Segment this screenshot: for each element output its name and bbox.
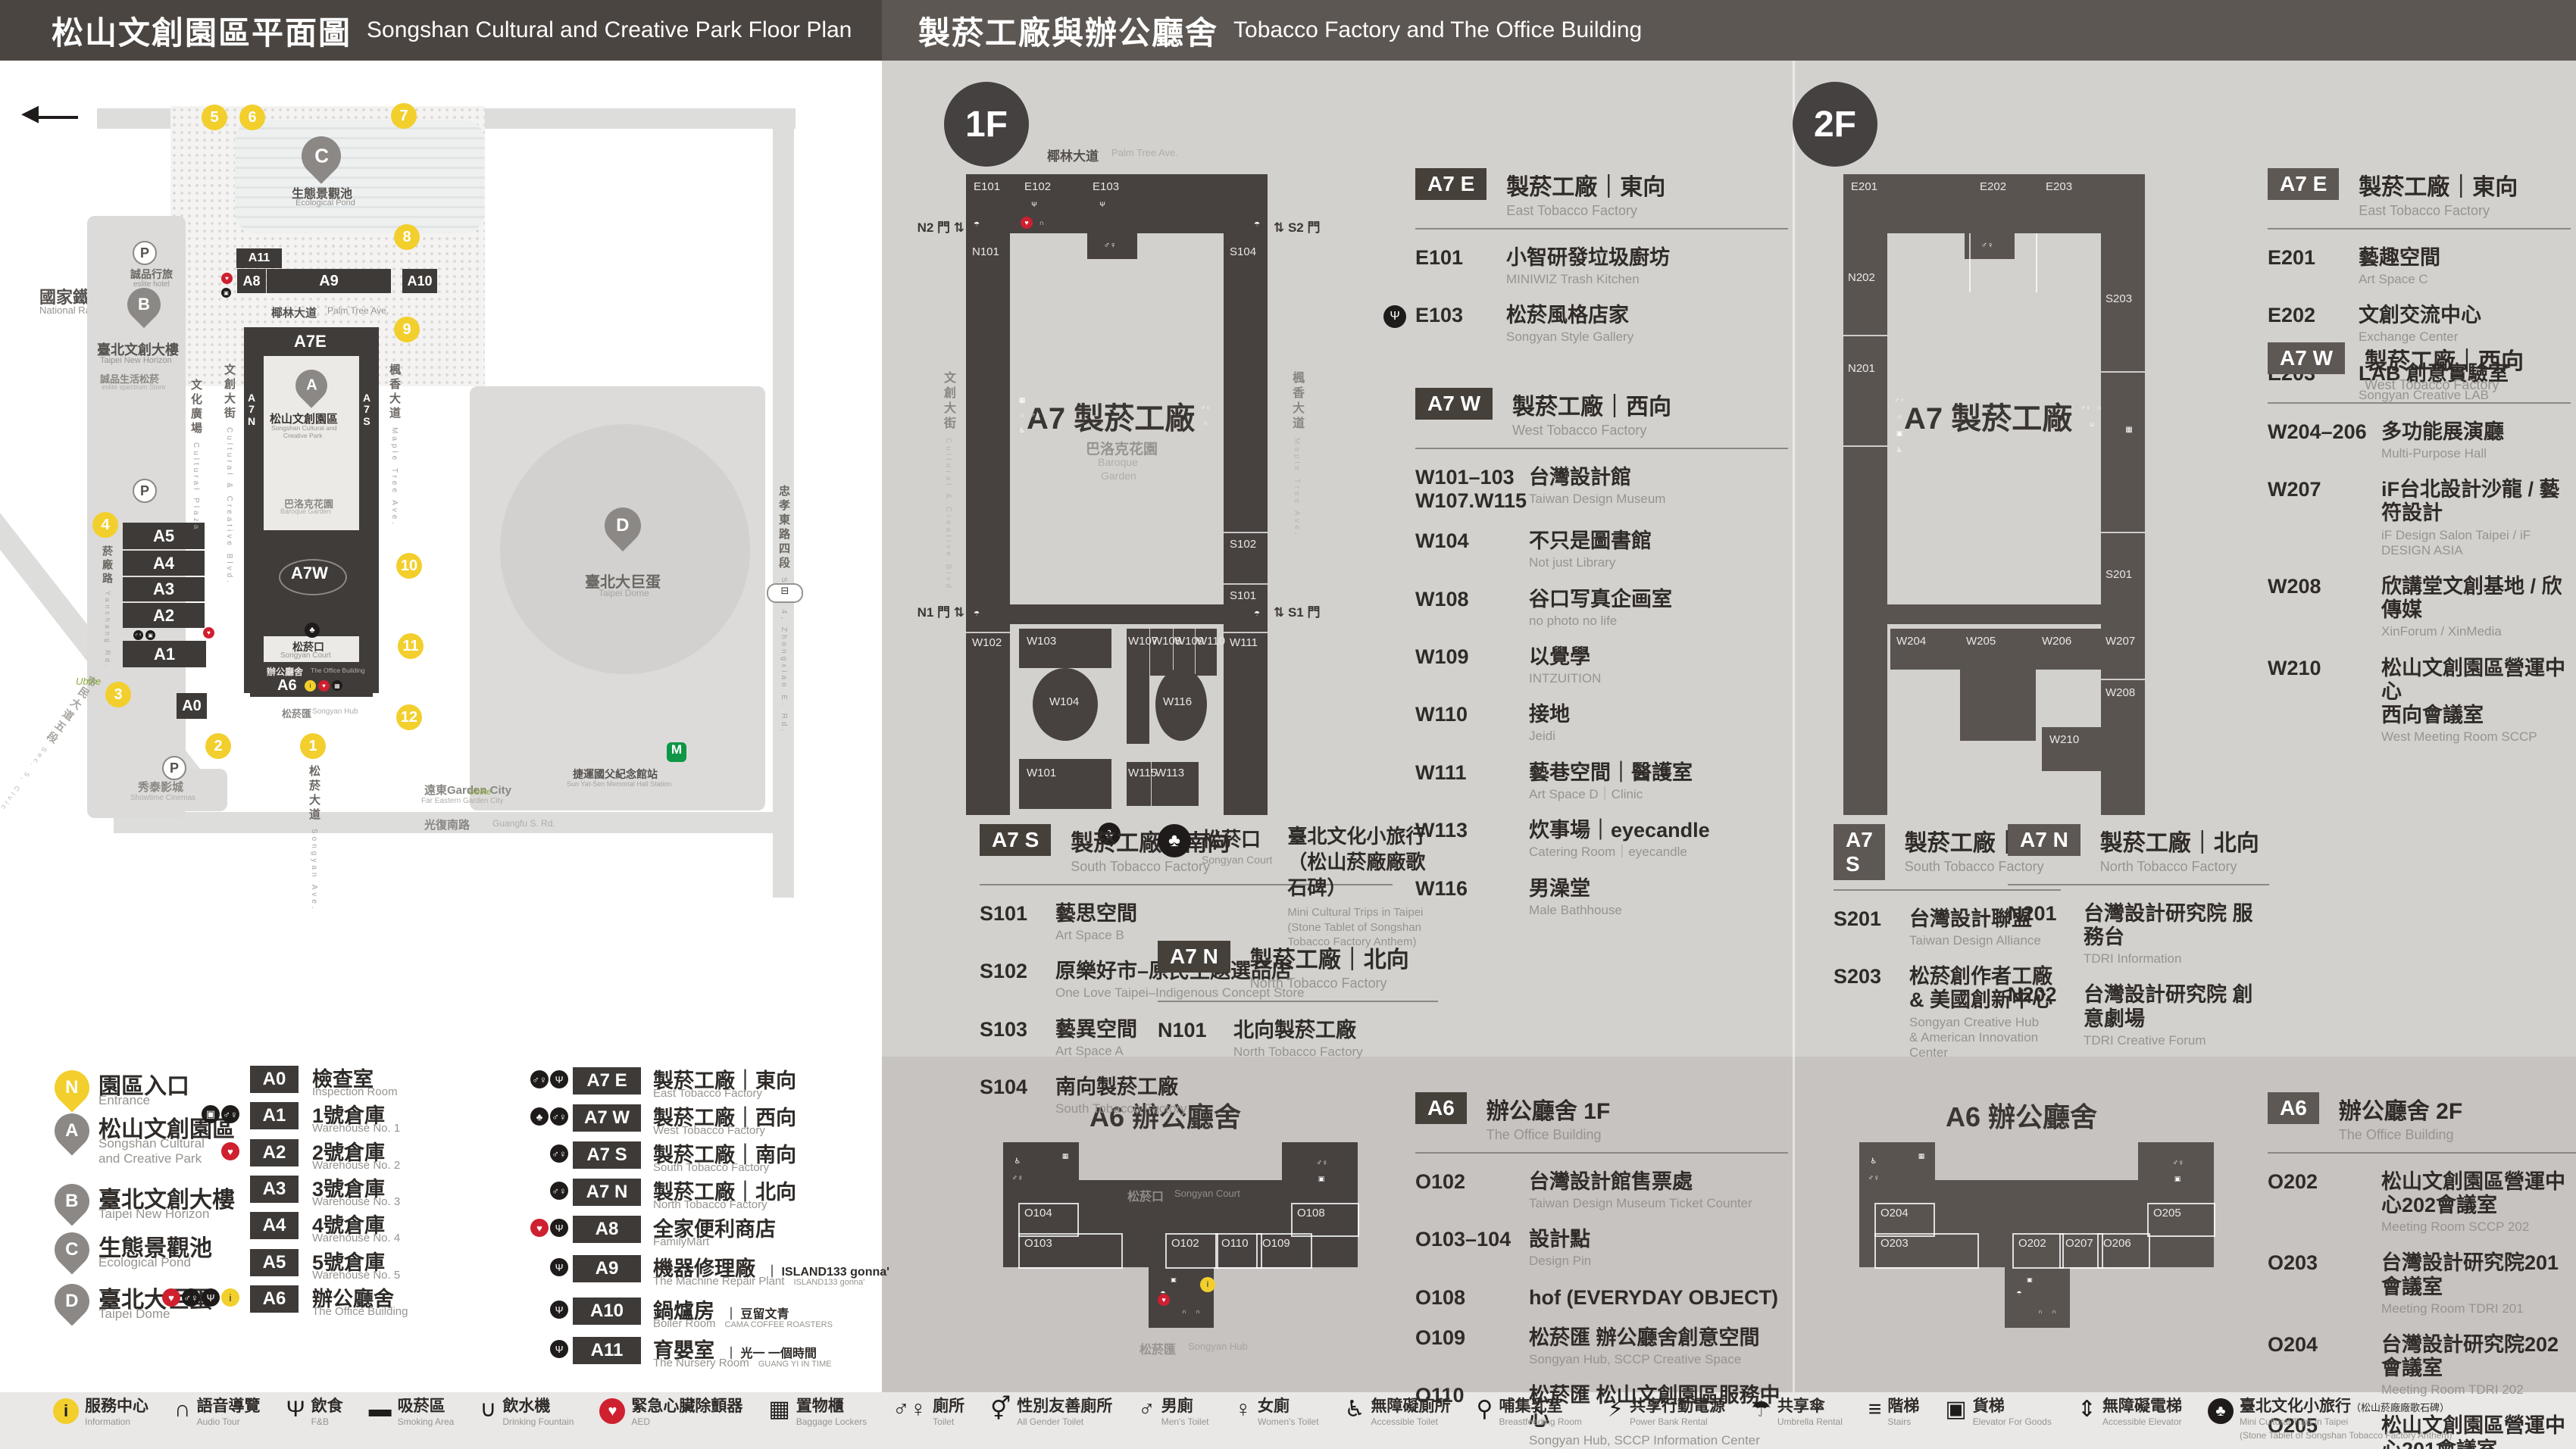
toilet-icon: ♂♀: [550, 1107, 568, 1126]
eslite-hotel-zh: 誠品行旅: [130, 267, 173, 282]
room-O104: O104: [1018, 1203, 1079, 1237]
legend-chip-A2: A2: [250, 1139, 299, 1166]
goods-icon: ▣: [1168, 1274, 1179, 1285]
locker-icon: ▦: [768, 1398, 789, 1421]
room-O102: O102: [1165, 1233, 1218, 1269]
civic-label: 市民大道五段Sec. 5, Civic Blvd.: [0, 673, 101, 845]
toilet-icon: ♂♀: [133, 630, 143, 640]
room-label-N101: N101: [972, 245, 999, 258]
audio-icon: ∩: [1893, 411, 1905, 423]
room-divider: [2101, 679, 2145, 680]
taipei-dome: [500, 424, 750, 674]
toilet-icon: ♂♀: [1199, 401, 1211, 414]
legend-chip-A8: A8: [573, 1216, 641, 1243]
drink-icon: ∪: [480, 1398, 496, 1421]
food-icon: Ψ: [1028, 198, 1040, 211]
legend-bldg-en: East Tobacco Factory: [653, 1087, 762, 1100]
map-block-A8: A8: [237, 269, 266, 293]
pond-en: Ecological Pond: [295, 198, 355, 208]
entrance-5: 5: [202, 105, 227, 130]
gate-s2: ⇅ S2 門: [1274, 217, 1320, 236]
legend-chip-A9: A9: [573, 1255, 641, 1282]
room-label-S102: S102: [1230, 538, 1256, 551]
legend-chip-A10: A10: [573, 1298, 641, 1325]
facility-info: i服務中心Information: [53, 1398, 148, 1429]
room-label-W111: W111: [1230, 636, 1258, 649]
new-horizon-en: Taipei New Horizon: [100, 356, 172, 365]
goods-icon: ▣: [1893, 427, 1905, 439]
map-office-en: The Office Building: [311, 667, 365, 674]
toilet-icon: ♂♀: [1315, 1156, 1329, 1170]
map-park-en2: Creative Park: [283, 432, 323, 439]
legend-bldg-en: North Tobacco Factory: [653, 1198, 767, 1211]
facility-goods: ▣貨梯Elevator For Goods: [1945, 1398, 2051, 1429]
legend-pin-en: Songshan Cultural: [98, 1136, 205, 1151]
smoking-icon: ▬: [369, 1398, 392, 1421]
goods-icon: ▣: [221, 288, 231, 298]
audio-icon: ∩: [2035, 1306, 2046, 1316]
umbrella-icon: ☂: [1251, 607, 1263, 620]
umbrella-icon: ☂: [1751, 1398, 1771, 1421]
plan-garden-en2: Garden: [1101, 470, 1136, 482]
room-label-W204: W204: [1896, 635, 1926, 648]
entrance-6: 6: [239, 105, 265, 130]
room-label-E201: E201: [1851, 180, 1877, 193]
plan-center-label: A7 製菸工廠: [1027, 394, 1195, 438]
room-O206: O206: [2097, 1233, 2150, 1269]
food-icon: Ψ: [550, 1258, 568, 1276]
legend-chip-A7 S: A7 S: [573, 1141, 641, 1169]
legend-chip-A0: A0: [250, 1066, 299, 1093]
aed-icon: ♥: [162, 1288, 180, 1307]
a6-hub-en: Songyan Hub: [1188, 1341, 1248, 1352]
legend-chip-A7 W: A7 W: [573, 1104, 641, 1132]
audio-icon: ∩: [1036, 217, 1048, 229]
entrance-1: 1: [300, 733, 326, 759]
entrance-10: 10: [396, 553, 422, 579]
map-a7s-label: A 7 S: [363, 392, 370, 427]
room-label-W116: W116: [1163, 695, 1192, 708]
toilet-icon: ♂♀: [2080, 401, 2092, 414]
room-divider: [1224, 532, 1268, 533]
map-office-zh: 辦公廳舍: [267, 665, 303, 678]
toilet-icon: ♂♀: [1893, 394, 1905, 406]
drink-icon: ∪: [2086, 418, 2098, 430]
metro-icon: M: [667, 742, 686, 762]
goods-icon: ▣: [1945, 1398, 1966, 1421]
legend-chip-A7 E: A7 E: [573, 1067, 641, 1095]
room-label-E202: E202: [1980, 180, 2006, 193]
umbrella-icon: ☂: [2014, 1288, 2024, 1298]
audio-icon: ∩: [1016, 409, 1028, 421]
access-icon: ♿: [1016, 424, 1028, 436]
plan-center-label: A7 製菸工廠: [1904, 394, 2072, 438]
metro-zh: 捷運國父紀念館站: [573, 767, 658, 782]
eslite-spectrum-en: eslite spectrum Store: [102, 383, 166, 391]
room-divider: [1843, 445, 1887, 447]
entrance-3: 3: [105, 682, 131, 707]
gate-n1: N1 門 ⇅: [918, 601, 964, 620]
plan-corridor: [966, 604, 1268, 624]
parking-icon: P: [133, 241, 157, 265]
info-icon: i: [221, 1288, 239, 1307]
room-label-E102: E102: [1024, 180, 1051, 193]
access-icon: ♿: [1011, 1154, 1024, 1168]
audio-icon: ∩: [1199, 417, 1211, 429]
parking-icon: P: [133, 479, 157, 503]
aed-icon: ♥: [1021, 217, 1033, 229]
street-palm-zh: 椰林大道: [1047, 145, 1099, 164]
elev-icon: ⇕: [2077, 1398, 2096, 1421]
locker-icon: ▦: [1059, 1150, 1071, 1162]
floor1-badge: 1F: [944, 82, 1029, 167]
room-O103: O103: [1018, 1233, 1123, 1269]
facility-umbrella: ☂共享傘Umbrella Rental: [1751, 1398, 1843, 1429]
legend-pin-en2: and Creative Park: [98, 1151, 202, 1166]
map-a7e-label: A7E: [294, 332, 327, 351]
yanchang-label: 菸廠路Yanchang Rd.: [100, 545, 115, 670]
room-O204: O204: [1874, 1203, 1935, 1237]
toilet-icon: ♂♀: [1867, 1171, 1880, 1185]
facility-audio: ∩語音導覽Audio Tour: [174, 1398, 261, 1429]
plan-col-left: [966, 233, 1010, 815]
room-divider: [1969, 233, 1971, 292]
map-block-A3: A3: [123, 577, 205, 601]
map-block-A9: A9: [267, 269, 391, 293]
toilet-icon: ♂♀: [893, 1398, 927, 1421]
room-label-W113: W113: [1155, 767, 1184, 779]
map-a7w-label: A7W: [291, 564, 328, 583]
ubike-label: Ubike: [76, 676, 101, 687]
facility-drink: ∪飲水機Drinking Fountain: [480, 1398, 574, 1429]
maple-label: 楓香大道Maple Tree Ave.: [386, 364, 402, 527]
allgender-icon: ⚥: [990, 1398, 1011, 1421]
legend-chip-A11: A11: [573, 1337, 641, 1364]
header-right: 製菸工廠與辦公廳舍 Tobacco Factory and The Office…: [882, 0, 2576, 61]
legend-pin-D: D: [47, 1276, 96, 1326]
access-icon: ♿: [1345, 1398, 1365, 1421]
locker-icon: ▦: [332, 680, 342, 691]
room-divider: [1224, 632, 1268, 633]
eslite-hotel-en: eslite hotel: [133, 280, 170, 289]
legend-pin-A: A: [47, 1106, 96, 1155]
ubike-label: Ubike: [468, 786, 492, 797]
legend-pin-C: C: [47, 1225, 96, 1274]
page-title-right-zh: 製菸工廠與辦公廳舍: [918, 8, 1218, 54]
bus-stop-icon: ⊟: [767, 583, 803, 603]
room-label-S101: S101: [1230, 589, 1256, 602]
food-icon: Ψ: [286, 1398, 305, 1421]
street-maple: 楓香大道Maple Tree Ave.: [1287, 371, 1305, 538]
legend-bldg-en: Warehouse No. 1: [312, 1122, 400, 1135]
metro-en: Sun Yat-Sen Memorial Hall Station: [567, 780, 671, 788]
legend-bldg-en: The Office Building: [312, 1305, 408, 1318]
facility-access: ♿無障礙廁所Accessible Toilet: [1345, 1398, 1451, 1429]
legend-chip-A1: A1: [250, 1102, 299, 1129]
legend-bldg-en: Warehouse No. 2: [312, 1159, 400, 1172]
header-left: 松山文創園區平面圖 Songshan Cultural and Creative…: [0, 0, 882, 61]
entrance-2: 2: [205, 733, 231, 759]
power-icon: ⚡: [1608, 1398, 1624, 1421]
map-block-A1: A1: [123, 641, 206, 667]
room-divider: [1224, 583, 1268, 585]
a6-plan-title: A6 辦公廳舍: [1946, 1095, 2097, 1135]
audio-icon: ∩: [1193, 1306, 1203, 1316]
plan-col-right: [1224, 233, 1268, 815]
entrance-12: 12: [396, 704, 422, 730]
goods-icon: ▣: [202, 1105, 220, 1123]
food-icon: Ψ: [550, 1070, 568, 1088]
facility-women: ♀女廁Women's Toilet: [1235, 1398, 1319, 1429]
legend-bldg-en: Boiler RoomCAMA COFFEE ROASTERS: [653, 1317, 833, 1330]
food-icon: Ψ: [550, 1219, 568, 1237]
room-label-W210: W210: [2049, 733, 2079, 746]
a6-stem: [2005, 1267, 2070, 1328]
tree-icon: ♣: [2208, 1398, 2234, 1424]
info-icon: i: [305, 680, 316, 692]
guangfu-label-zh: 光復南路: [424, 817, 470, 832]
legend-pin-N: N: [47, 1063, 96, 1112]
room-label-W104: W104: [1049, 695, 1079, 708]
tree-icon: ♣: [1098, 823, 1121, 845]
a6-court-en: Songyan Court: [1174, 1188, 1240, 1199]
gate-s1: ⇅ S1 門: [1274, 601, 1320, 620]
map-baroque-en: Baroque Garden: [280, 507, 331, 515]
audio-icon: ∩: [174, 1398, 191, 1421]
audio-icon: ∩: [2093, 401, 2106, 414]
map-court-en: Songyan Court: [280, 651, 331, 660]
map-park-en1: Songshan Cultural and: [271, 424, 336, 432]
map-legend: N園區入口EntranceA松山文創園區Songshan Culturaland…: [0, 1057, 882, 1390]
food-icon: Ψ: [550, 1301, 568, 1319]
room-label-W206: W206: [2042, 635, 2071, 648]
a6-plan-title: A6 辦公廳舍: [1089, 1095, 1241, 1135]
ecological-pond: [235, 120, 485, 233]
facility-smoking: ▬吸菸區Smoking Area: [369, 1398, 455, 1429]
map-block-A0: A0: [177, 693, 207, 719]
legend-pin-en: Entrance: [98, 1093, 150, 1108]
plan-col-left: [1843, 233, 1887, 815]
room-divider: [1843, 335, 1887, 336]
showtime-en: Showtime Cinemas: [130, 794, 195, 802]
goods-icon: ▣: [1315, 1173, 1327, 1185]
entrance-9: 9: [394, 317, 420, 342]
locker-icon: ▦: [1915, 1150, 1927, 1162]
room-label-S201: S201: [2106, 568, 2132, 581]
room-O202: O202: [2012, 1233, 2064, 1269]
ccblvd-label: 文創大街Cultural & Creative Blvd.: [221, 364, 237, 586]
facility-elev: ⇕無障礙電梯Accessible Elevator: [2077, 1398, 2182, 1429]
facility-allgender: ⚥性別友善廁所All Gender Toilet: [990, 1398, 1112, 1429]
room-label-E101: E101: [974, 180, 1000, 193]
aed-icon: ♥: [318, 680, 330, 692]
aed-icon: ♥: [530, 1219, 549, 1237]
north-arrow-icon: ◀: [21, 100, 97, 120]
tree-icon: ♣: [305, 623, 320, 638]
room-label-W115: W115: [1128, 767, 1157, 779]
women-icon: ♀: [1235, 1398, 1252, 1421]
legend-pin-en: Taipei Dome: [98, 1307, 170, 1322]
room-label-W102: W102: [972, 636, 1002, 649]
toilet-icon: ♂♀: [182, 1288, 200, 1307]
toilet-icon: ♂♀: [550, 1145, 568, 1163]
room-label-S104: S104: [1230, 245, 1256, 258]
office-building-plan-2f: A6 辦公廳舍♿♂♀▦♂♀▣▣☂∩∩O204O203O202O207O206O2…: [1832, 1089, 2241, 1385]
room-label-W110: W110: [1196, 635, 1225, 648]
locker-icon: ▦: [2122, 423, 2136, 436]
office-building-plan-1f: A6 辦公廳舍♿♂♀▦♂♀▣▣☂∩∩松菸口Songyan Courti♥松菸匯S…: [976, 1089, 1385, 1385]
legend-bldg-en: The Nursery RoomGUANG YI IN TIME: [653, 1357, 831, 1369]
room-label-W101: W101: [1027, 767, 1056, 779]
food-icon: Ψ: [1096, 198, 1108, 211]
park-map: ◀國家鐵道博物館National Railway MuseumP誠品行旅esli…: [0, 61, 882, 1057]
legend-bldg-en: Warehouse No. 3: [312, 1195, 400, 1208]
facility-tree: ♣臺北文化小旅行（松山菸廠廠歌石碑）Mini Cultural Trips in…: [2208, 1398, 2452, 1442]
legend-pin-en: Taipei New Horizon: [98, 1207, 209, 1222]
legend-bldg-en: Warehouse No. 4: [312, 1232, 400, 1244]
facility-icon-legend: i服務中心Information∩語音導覽Audio TourΨ飲食F&B▬吸菸…: [53, 1398, 2538, 1447]
access-icon: ♿: [1867, 1154, 1880, 1168]
a6-court-zh: 松菸口: [1127, 1186, 1164, 1204]
map-block-A2: A2: [123, 603, 205, 628]
entrance-8: 8: [394, 224, 420, 250]
facility-breastfeed: ⚲哺集乳室Breastfeeding Room: [1476, 1398, 1581, 1429]
facility-locker: ▦置物櫃Baggage Lockers: [768, 1398, 867, 1429]
room-label-W205: W205: [1966, 635, 1996, 648]
floor-plan-poster: 松山文創園區平面圖 Songshan Cultural and Creative…: [0, 0, 2576, 1449]
room-divider: [2036, 233, 2037, 292]
page-title-right-en: Tobacco Factory and The Office Building: [1233, 17, 1642, 43]
facility-toilet: ♂♀廁所Toilet: [893, 1398, 964, 1429]
room-label-W103: W103: [1027, 635, 1056, 648]
aed-icon: ♥: [221, 1142, 239, 1160]
room-O205: O205: [2147, 1203, 2215, 1237]
legend-chip-A5: A5: [250, 1249, 299, 1276]
legend-bldg-en: South Tobacco Factory: [653, 1161, 769, 1174]
facility-aed: ♥緊急心臟除顫器AED: [599, 1398, 742, 1429]
legend-pin-en: Ecological Pond: [98, 1255, 191, 1270]
page-title-left-en: Songshan Cultural and Creative Park Floo…: [367, 17, 852, 43]
audio-icon: ∩: [2049, 1306, 2059, 1316]
toilet-icon: ♂♀: [550, 1182, 568, 1200]
aed-icon: ♥: [203, 627, 214, 639]
street-ccblvd: 文創大街Cultural & Creative Blvd.: [939, 371, 957, 596]
umbrella-icon: ☂: [971, 218, 983, 230]
legend-pin-B: B: [47, 1176, 96, 1226]
map-hub-en: Songyan Hub: [312, 707, 358, 716]
goods-icon: ▣: [145, 630, 155, 640]
a6-hub-zh: 松菸匯: [1140, 1339, 1176, 1357]
room-label-S203: S203: [2106, 292, 2132, 305]
plan-corridor: [1843, 604, 2145, 624]
legend-chip-A4: A4: [250, 1212, 299, 1239]
toilet-icon: ♂♀: [530, 1070, 549, 1088]
map-a7n-label: A 7 N: [248, 392, 255, 427]
legend-bldg-en: West Tobacco Factory: [653, 1124, 765, 1137]
goods-icon: ▣: [2171, 1173, 2184, 1185]
locker-icon: ▦: [1016, 394, 1028, 406]
gardencity-en: Far Eastern Garden City: [421, 797, 503, 805]
room-label-N201: N201: [1848, 362, 1875, 375]
map-block-A10: A10: [402, 269, 437, 293]
plan-garden-zh: 巴洛克花園: [1086, 438, 1158, 458]
room-O110: O110: [1215, 1233, 1262, 1269]
food-icon: Ψ: [202, 1288, 220, 1307]
room-O109: O109: [1256, 1233, 1312, 1269]
facility-stairs: ≡階梯Stairs: [1868, 1398, 1920, 1429]
toilet-icon: ♂♀: [2171, 1156, 2185, 1170]
map-hub-zh: 松菸匯: [282, 706, 311, 720]
floor2-badge: 2F: [1793, 82, 1877, 167]
toilet-icon: ♂♀: [221, 1105, 239, 1123]
showtime-zh: 秀泰影城: [138, 779, 183, 795]
room-divider: [2101, 532, 2145, 533]
facility-power: ⚡共享行動電源Power Bank Rental: [1608, 1398, 1725, 1429]
room-label-N202: N202: [1848, 271, 1875, 284]
room-label-E103: E103: [1093, 180, 1119, 193]
toilet-icon: ♂♀: [1011, 1171, 1024, 1185]
zhongxiao-label: 忠孝東路四段Sec. 4, Zhongxiao E. Rd.: [776, 485, 792, 734]
men-icon: ♂: [1138, 1398, 1155, 1421]
map-block-A4: A4: [123, 551, 205, 576]
legend-bldg-en: The Machine Repair PlantISLAND133 gonna': [653, 1275, 864, 1288]
food-icon: Ψ: [550, 1340, 568, 1358]
dome-en: Taipei Dome: [599, 588, 649, 598]
info-icon: i: [53, 1398, 79, 1424]
room-label-W207: W207: [2106, 635, 2135, 648]
legend-bldg-en: Warehouse No. 5: [312, 1269, 400, 1282]
umbrella-icon: ☂: [1251, 218, 1263, 230]
tree-icon: ♣: [530, 1107, 549, 1126]
palm-ave-zh: 椰林大道: [271, 304, 317, 320]
floor-divider: [1793, 61, 1795, 1392]
facility-food: Ψ飲食F&B: [286, 1398, 343, 1429]
map-block-A11: A11: [236, 248, 282, 268]
songyan-ave-label: 松菸大道Songyan Ave.: [306, 765, 322, 912]
legend-chip-A7 N: A7 N: [573, 1179, 641, 1206]
aed-icon: ♥: [221, 273, 233, 284]
gate-n2: N2 門 ⇅: [918, 217, 964, 236]
goods-icon: ▣: [2024, 1274, 2035, 1285]
aed-icon: ♥: [1158, 1294, 1170, 1306]
toilet-icon: ♂♀: [1980, 238, 1995, 253]
street-palm-en: Palm Tree Ave.: [1111, 147, 1178, 158]
entrance-7: 7: [391, 103, 417, 129]
toilet-icon: ♂♀: [1030, 409, 1042, 421]
audio-icon: ∩: [1179, 1306, 1190, 1316]
floor2-plan: ♂♀A7 製菸工廠E201E202E203N202N201S203S201W20…: [1815, 144, 2171, 856]
plan-garden-en1: Baroque: [1098, 456, 1138, 468]
aed-icon: ♥: [599, 1398, 625, 1424]
legend-bldg-en: Inspection Room: [312, 1085, 398, 1098]
room-O203: O203: [1874, 1233, 1979, 1269]
room-label-E203: E203: [2046, 180, 2072, 193]
map-a6-label: A6: [277, 677, 297, 695]
room-divider: [2101, 371, 2145, 373]
guangfu-label-en: Guangfu S. Rd.: [492, 818, 555, 829]
stairs-icon: ≡: [1868, 1398, 1882, 1421]
page-title-left-zh: 松山文創園區平面圖: [52, 8, 352, 54]
legend-chip-A6: A6: [250, 1285, 299, 1313]
floor1-plan: ♂♀A7 製菸工廠椰林大道Palm Tree Ave.文創大街Cultural …: [937, 144, 1316, 856]
room-label-W208: W208: [2106, 686, 2135, 699]
entrance-4: 4: [92, 512, 118, 538]
entrance-11: 11: [398, 633, 424, 659]
room-O108: O108: [1291, 1203, 1359, 1237]
breastfeed-icon: ⚲: [1476, 1398, 1493, 1421]
access-icon: ♿: [1893, 444, 1905, 456]
umbrella-icon: ☂: [971, 607, 983, 620]
